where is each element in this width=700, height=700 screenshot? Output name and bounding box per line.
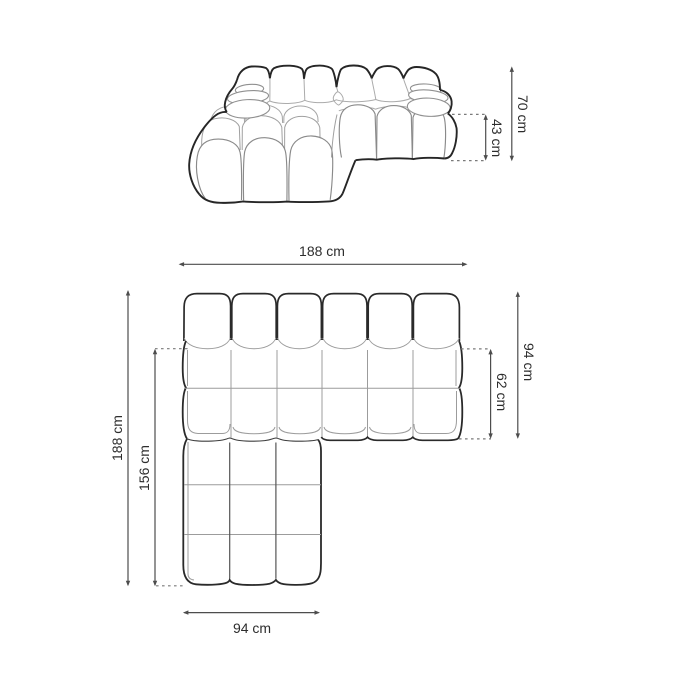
svg-text:43 cm: 43 cm xyxy=(489,119,505,157)
svg-text:188 cm: 188 cm xyxy=(109,415,125,461)
svg-text:94 cm: 94 cm xyxy=(521,343,537,381)
svg-text:62 cm: 62 cm xyxy=(494,373,510,411)
svg-text:70 cm: 70 cm xyxy=(515,95,531,133)
svg-text:156 cm: 156 cm xyxy=(136,445,152,491)
svg-text:94 cm: 94 cm xyxy=(233,620,271,636)
svg-text:188 cm: 188 cm xyxy=(299,243,345,259)
